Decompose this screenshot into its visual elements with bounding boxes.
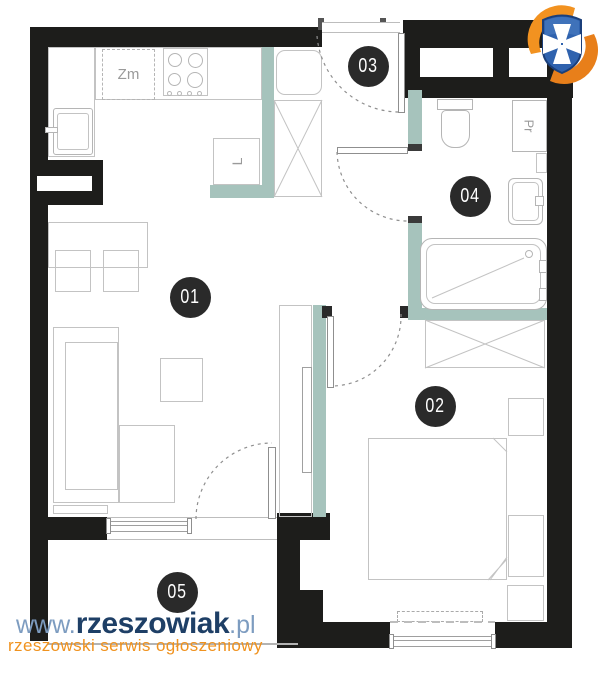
sofa-cushion [65,342,118,490]
wall-bottom-bedroom-left [323,622,390,648]
floor-plan: Zm L Pr [0,0,603,675]
stove-burner-icon [187,72,203,88]
wall-bottom-bedroom-right [495,622,571,648]
washing-machine-label: Pr [504,109,556,144]
room-number: 02 [426,395,445,418]
balcony-door-swing-arc [196,443,272,519]
sofa-shelf [53,505,108,514]
living-room-window [110,521,188,532]
wall-left [30,27,48,641]
stove-knob-icon [167,91,172,96]
watermark-tld: .pl [229,611,255,639]
watermark-www: www. [16,611,76,639]
bathtub-basin [426,244,541,304]
faucet-icon [45,127,58,133]
hall-cabinet [276,50,322,95]
sofa-chaise [119,425,175,503]
room-number: 01 [181,286,200,309]
bedroom-window [393,636,492,647]
wall-niche [420,48,493,77]
tv [302,367,312,473]
stove-burner-icon [188,53,203,68]
stove-knob-icon [177,91,182,96]
kitchen-sink-basin [57,113,89,150]
hall-wardrobe [274,100,322,197]
nightstand [508,515,544,577]
room-number: 04 [461,185,480,208]
watermark-tagline: rzeszowski serwis ogłoszeniowy [8,636,263,656]
wall-niche [37,176,92,191]
bedroom-wardrobe [425,320,545,368]
stove-knob-icon [197,91,202,96]
bathroom-door-leaf [337,147,408,154]
room-badge-04: 04 [450,176,491,217]
dishwasher-label: Zm [102,49,155,100]
bathtub-faucet-icon [539,288,547,301]
bathroom-shelf [536,153,547,173]
window-cap [389,634,394,649]
room-badge-02: 02 [415,386,456,427]
accent-wall-partition [313,305,326,517]
room-number: 05 [168,581,187,604]
nightstand [508,398,544,436]
wall-bottom-mid [277,513,330,540]
nightstand [507,585,544,621]
room-badge-03: 03 [348,46,389,87]
door-jamb [400,306,408,318]
window-cap [187,518,192,534]
bathtub-faucet-icon [539,260,547,273]
bed [368,438,507,580]
faucet-icon [535,196,544,206]
toilet [441,110,470,148]
bathroom-door-swing-arc [337,152,410,221]
crest-logo-icon [521,2,603,86]
room-number: 03 [359,55,378,78]
wall-bottom-living [48,517,107,540]
toilet-tank [437,99,473,110]
wall-bedroom-notch [300,590,323,648]
entrance-door-leaf [398,33,405,113]
bedroom-door-swing-arc [333,314,401,386]
radiator [397,611,483,622]
wall-top [30,27,322,47]
window-cap [106,518,111,534]
dining-table [48,222,148,268]
door-jamb [408,216,422,223]
wall-balcony-right [277,540,300,648]
stove-burner-icon [168,73,181,86]
window-cap [491,634,496,649]
balcony-door-leaf [268,447,276,519]
entrance-doorway [322,22,400,33]
bedroom-door-leaf [327,316,334,388]
stove-burner-icon [168,53,182,67]
accent-wall-kitchen-vertical [262,47,274,198]
accent-wall-kitchen-foot [210,185,274,198]
door-jamb [408,144,422,151]
coffee-table [160,358,203,402]
fridge-label: L [213,138,260,185]
stove-knob-icon [187,91,192,96]
accent-wall-bathroom-upper [408,90,422,150]
rzeszow-crest-logo [521,2,603,91]
room-badge-01: 01 [170,277,211,318]
